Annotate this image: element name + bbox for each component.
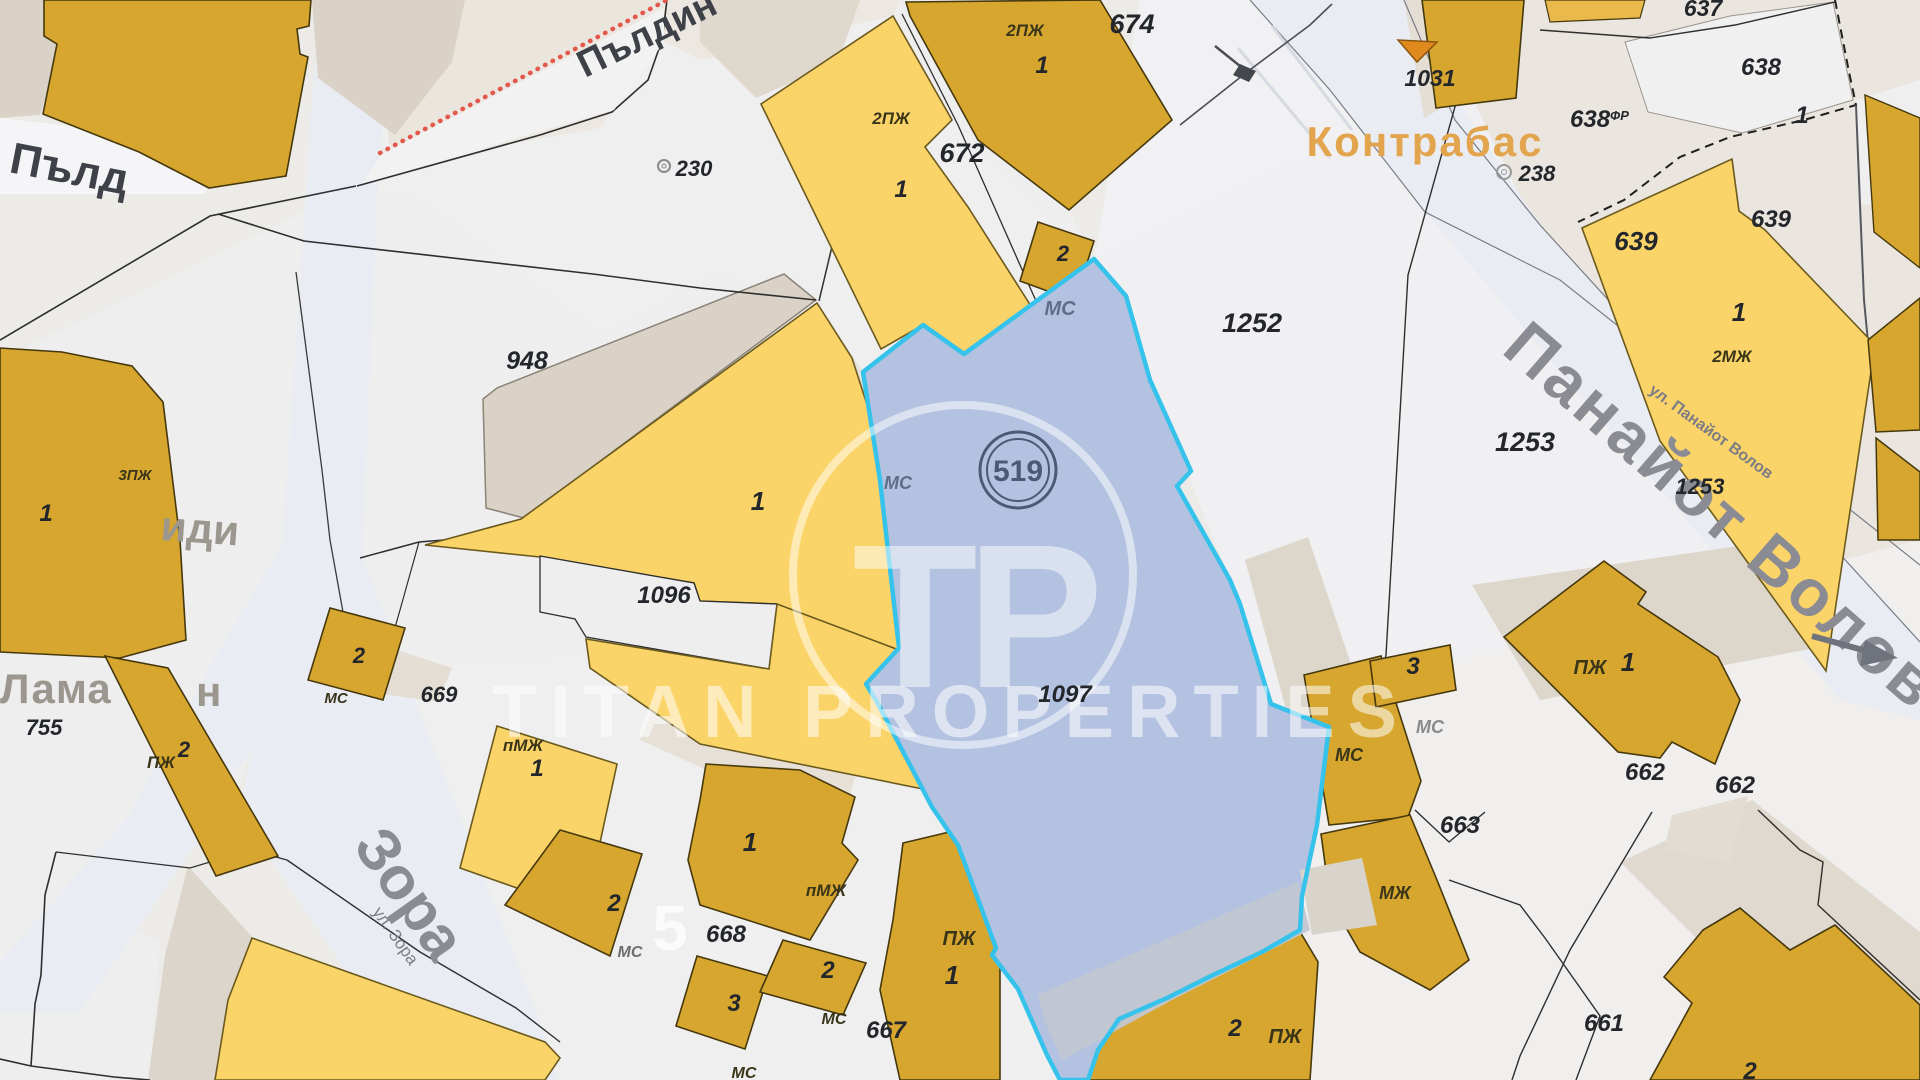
svg-text:1252: 1252 [1222,308,1282,338]
svg-text:519: 519 [993,455,1043,488]
svg-text:н: н [196,668,221,715]
svg-text:662: 662 [1625,759,1666,786]
svg-text:3ПЖ: 3ПЖ [118,467,152,484]
svg-text:TITAN PROPERTIES: TITAN PROPERTIES [492,670,1410,753]
svg-text:Контрабас: Контрабас [1307,118,1544,165]
svg-text:638: 638 [1741,54,1782,81]
svg-text:2ПЖ: 2ПЖ [871,109,911,128]
svg-text:1: 1 [530,755,543,782]
svg-text:1253: 1253 [1495,427,1555,457]
svg-text:639: 639 [1751,206,1792,233]
svg-text:иди: иди [159,502,240,554]
svg-text:1: 1 [1732,297,1746,327]
svg-text:МС: МС [884,473,913,493]
svg-text:1: 1 [1621,647,1635,677]
svg-text:1096: 1096 [637,582,691,609]
svg-text:669: 669 [421,682,458,707]
svg-text:МС: МС [1044,298,1076,320]
svg-text:672: 672 [939,138,984,168]
svg-text:755: 755 [26,715,63,740]
svg-text:667: 667 [866,1017,908,1044]
svg-text:2ПЖ: 2ПЖ [1005,21,1045,40]
svg-text:637: 637 [1684,0,1724,21]
svg-text:1: 1 [1795,102,1808,129]
svg-text:238: 238 [1518,161,1556,186]
svg-text:МС: МС [822,1011,847,1028]
svg-text:5: 5 [652,892,688,964]
svg-text:МС: МС [1335,745,1364,765]
svg-text:2: 2 [177,737,191,762]
svg-text:230: 230 [675,156,713,181]
svg-text:1253: 1253 [1676,474,1725,499]
svg-text:1: 1 [743,827,757,857]
svg-text:МС: МС [618,944,643,961]
svg-text:2: 2 [1056,241,1070,266]
svg-text:2: 2 [352,643,366,668]
svg-text:пМЖ: пМЖ [503,736,545,755]
svg-text:663: 663 [1440,812,1481,839]
svg-text:ПЖ: ПЖ [147,753,176,772]
svg-text:1: 1 [894,176,907,203]
svg-text:МС: МС [732,1065,757,1080]
svg-text:2МЖ: 2МЖ [1711,347,1753,366]
svg-text:1: 1 [945,960,959,990]
svg-text:639: 639 [1614,226,1658,256]
svg-text:2: 2 [606,890,621,917]
svg-text:661: 661 [1584,1010,1624,1037]
svg-text:3: 3 [1406,653,1420,680]
svg-text:1031: 1031 [1404,65,1455,91]
svg-text:1: 1 [751,486,765,516]
svg-text:ПЖ: ПЖ [1574,657,1608,679]
svg-text:1097: 1097 [1038,681,1093,708]
svg-text:МС: МС [324,690,348,707]
svg-text:2: 2 [820,957,835,984]
svg-text:МЖ: МЖ [1379,883,1412,903]
svg-text:пМЖ: пМЖ [806,881,848,900]
svg-text:2: 2 [1227,1015,1242,1042]
svg-text:Лама: Лама [0,665,112,712]
svg-text:2: 2 [1742,1058,1757,1080]
svg-text:ПЖ: ПЖ [1269,1026,1303,1048]
svg-text:1: 1 [39,500,52,527]
svg-text:МС: МС [1416,717,1445,737]
svg-text:674: 674 [1109,9,1154,39]
svg-text:662: 662 [1715,772,1756,799]
svg-text:668: 668 [706,921,747,948]
svg-text:ПЖ: ПЖ [943,928,977,950]
svg-text:1: 1 [1035,52,1048,79]
svg-text:3: 3 [727,990,741,1017]
svg-text:948: 948 [506,347,548,375]
